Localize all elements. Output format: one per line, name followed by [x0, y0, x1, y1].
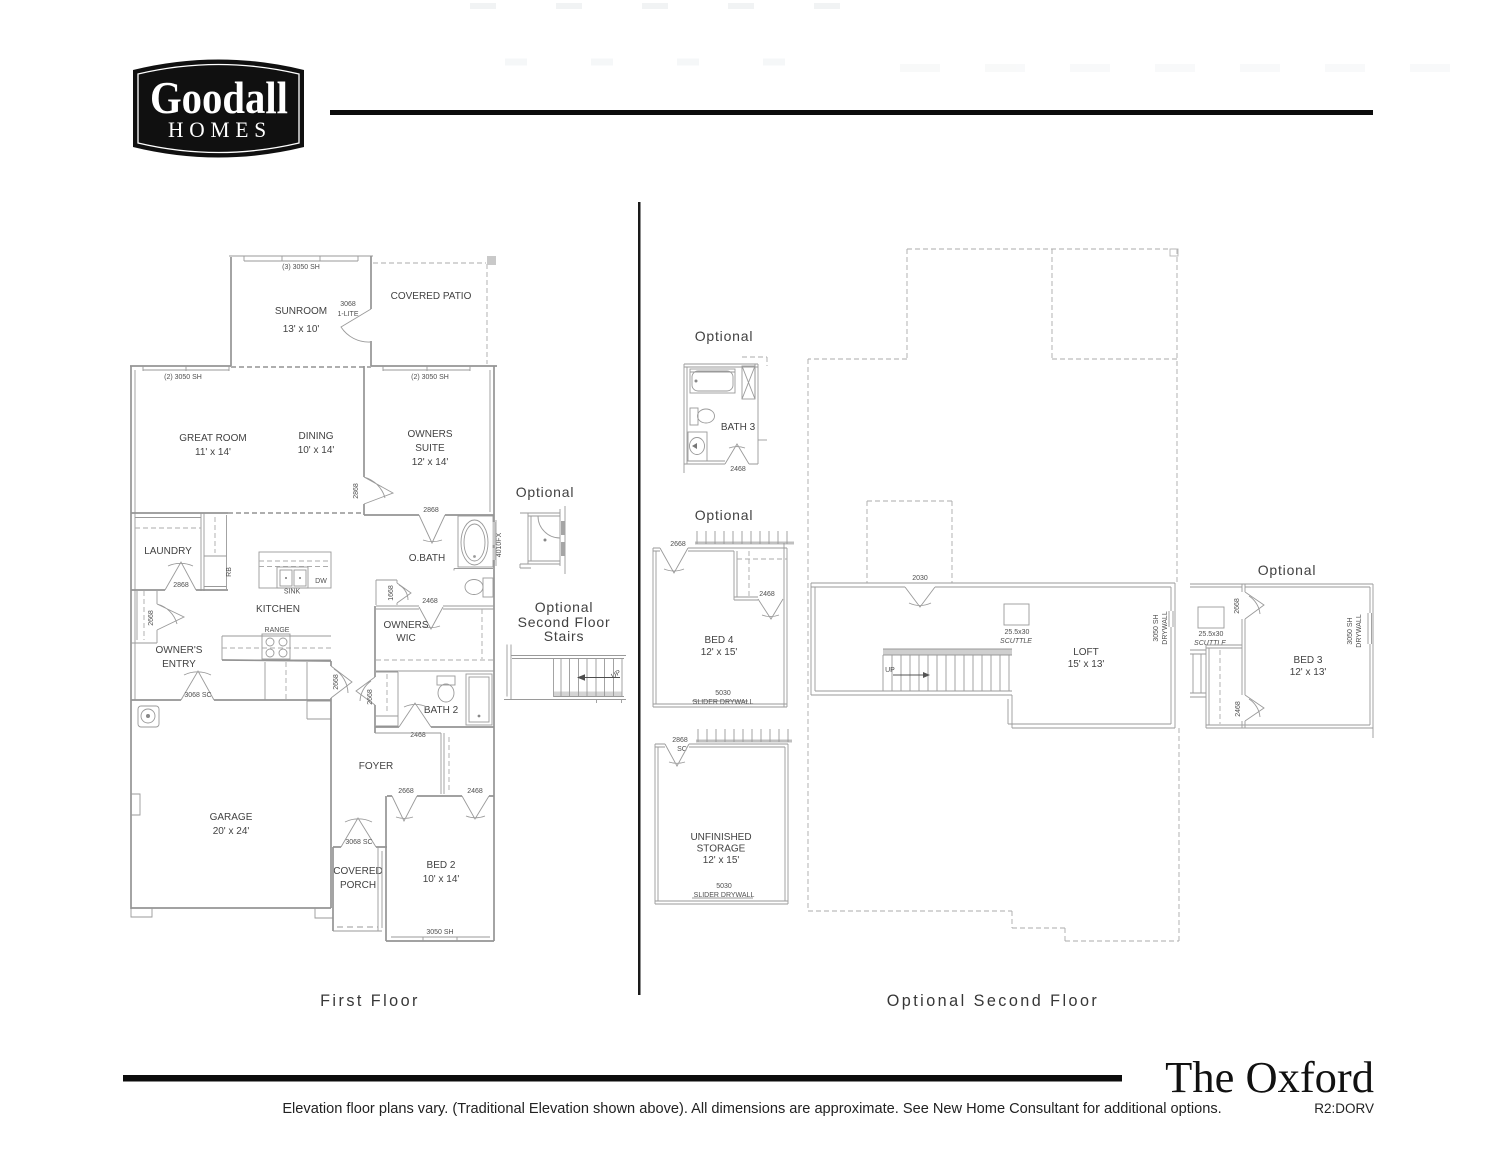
svg-text:25.5x30: 25.5x30 [1005, 629, 1030, 636]
svg-text:RANGE: RANGE [265, 627, 290, 634]
svg-text:10' x 14': 10' x 14' [298, 445, 335, 456]
svg-text:3050 SH: 3050 SH [1347, 617, 1354, 644]
svg-text:2468: 2468 [730, 466, 746, 473]
svg-text:Optional: Optional [516, 484, 575, 500]
svg-text:2030: 2030 [912, 575, 928, 582]
svg-text:SINK: SINK [284, 589, 301, 596]
svg-text:SUITE: SUITE [415, 443, 445, 454]
svg-text:20' x 24': 20' x 24' [213, 826, 250, 837]
svg-text:BED 2: BED 2 [427, 860, 456, 871]
svg-text:LAUNDRY: LAUNDRY [144, 546, 192, 557]
svg-text:Stairs: Stairs [544, 628, 585, 644]
svg-text:WIC: WIC [396, 633, 415, 644]
svg-text:1668: 1668 [388, 585, 395, 601]
svg-text:R2:DORV: R2:DORV [1314, 1101, 1374, 1116]
svg-text:BATH 2: BATH 2 [424, 705, 459, 716]
svg-text:First Floor: First Floor [320, 992, 420, 1010]
svg-text:Optional: Optional [1258, 562, 1317, 578]
svg-text:12' x 13': 12' x 13' [1290, 667, 1327, 678]
svg-text:SUNROOM: SUNROOM [275, 306, 327, 317]
svg-text:2668: 2668 [333, 674, 340, 690]
svg-text:2668: 2668 [398, 788, 414, 795]
svg-text:LOFT: LOFT [1073, 647, 1099, 658]
svg-text:2668: 2668 [367, 689, 374, 705]
svg-text:DRYWALL: DRYWALL [1162, 611, 1169, 645]
svg-text:2668: 2668 [670, 541, 686, 548]
svg-text:DRYWALL: DRYWALL [1356, 614, 1363, 648]
svg-text:OWNER'S: OWNER'S [156, 645, 203, 656]
svg-text:3068 SC: 3068 SC [184, 692, 211, 699]
svg-text:25.5x30: 25.5x30 [1199, 631, 1224, 638]
svg-text:2468: 2468 [759, 591, 775, 598]
svg-text:OWNERS: OWNERS [384, 620, 429, 631]
svg-text:RB: RB [226, 567, 233, 577]
svg-text:13' x 10': 13' x 10' [283, 324, 320, 335]
svg-text:(3) 3050 SH: (3) 3050 SH [282, 264, 320, 271]
svg-text:SC: SC [677, 746, 687, 753]
svg-text:COVERED: COVERED [333, 866, 382, 877]
svg-text:BATH 3: BATH 3 [721, 422, 756, 433]
svg-text:2868: 2868 [423, 507, 439, 514]
svg-text:KITCHEN: KITCHEN [256, 604, 300, 615]
svg-text:DINING: DINING [299, 431, 334, 442]
svg-text:GARAGE: GARAGE [210, 812, 253, 823]
svg-text:(2) 3050 SH: (2) 3050 SH [164, 374, 202, 381]
svg-text:SLIDER DRYWALL: SLIDER DRYWALL [693, 699, 754, 706]
svg-text:SCUTTLE: SCUTTLE [1000, 638, 1032, 645]
svg-text:The Oxford: The Oxford [1165, 1052, 1374, 1102]
svg-text:5030: 5030 [715, 690, 731, 697]
svg-text:DW: DW [315, 578, 327, 585]
svg-text:1-LITE: 1-LITE [337, 311, 358, 318]
svg-text:2468: 2468 [1235, 701, 1242, 717]
svg-text:11' x 14': 11' x 14' [195, 447, 231, 458]
svg-text:3050 SH: 3050 SH [1153, 614, 1160, 641]
svg-text:2668: 2668 [148, 610, 155, 626]
svg-text:3068: 3068 [340, 301, 356, 308]
svg-text:2868: 2868 [353, 483, 360, 499]
svg-text:2468: 2468 [422, 598, 438, 605]
svg-text:4010FX: 4010FX [496, 532, 503, 557]
svg-text:SCUTTLE: SCUTTLE [1194, 640, 1226, 647]
svg-text:12' x 15': 12' x 15' [701, 647, 738, 658]
svg-text:UP: UP [885, 667, 895, 674]
svg-text:2868: 2868 [672, 737, 688, 744]
svg-text:UNFINISHED: UNFINISHED [690, 832, 751, 843]
svg-text:Goodall: Goodall [150, 72, 288, 123]
svg-text:15' x 13': 15' x 13' [1068, 659, 1105, 670]
svg-text:12' x 15': 12' x 15' [703, 855, 740, 866]
svg-text:3068 SC: 3068 SC [345, 839, 372, 846]
svg-text:5030: 5030 [716, 883, 732, 890]
svg-text:Optional: Optional [695, 328, 754, 344]
svg-text:Optional: Optional [535, 599, 594, 615]
svg-text:ENTRY: ENTRY [162, 659, 196, 670]
svg-text:12' x 14': 12' x 14' [412, 457, 449, 468]
svg-text:FOYER: FOYER [359, 761, 393, 772]
svg-text:Elevation floor plans vary. (T: Elevation floor plans vary. (Traditional… [282, 1101, 1221, 1117]
svg-text:BED 4: BED 4 [705, 635, 734, 646]
svg-text:PORCH: PORCH [340, 880, 376, 891]
svg-text:COVERED PATIO: COVERED PATIO [391, 291, 472, 302]
svg-text:10' x 14': 10' x 14' [423, 874, 460, 885]
svg-text:GREAT ROOM: GREAT ROOM [179, 433, 246, 444]
svg-text:STORAGE: STORAGE [697, 844, 746, 855]
svg-text:OWNERS: OWNERS [408, 429, 453, 440]
svg-text:Optional: Optional [695, 507, 754, 523]
svg-text:2468: 2468 [467, 788, 483, 795]
svg-text:2868: 2868 [173, 582, 189, 589]
svg-text:2668: 2668 [1234, 598, 1241, 614]
svg-text:Optional Second Floor: Optional Second Floor [887, 992, 1100, 1010]
svg-text:(2) 3050 SH: (2) 3050 SH [411, 374, 449, 381]
svg-text:BED 3: BED 3 [1294, 655, 1323, 666]
svg-text:HOMES: HOMES [168, 117, 272, 142]
svg-text:O.BATH: O.BATH [409, 553, 445, 564]
svg-text:3050 SH: 3050 SH [426, 929, 453, 936]
